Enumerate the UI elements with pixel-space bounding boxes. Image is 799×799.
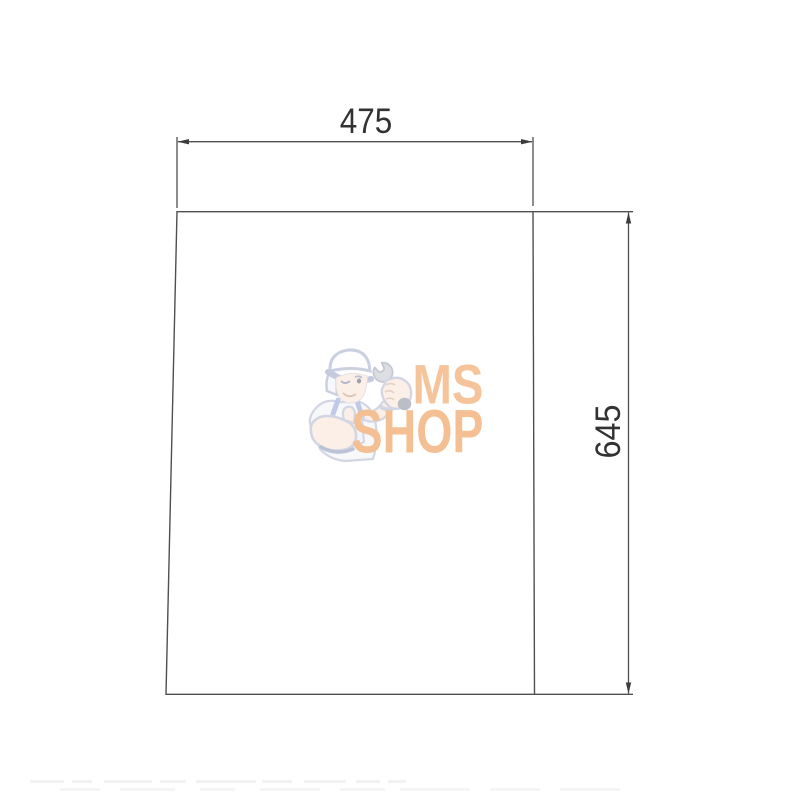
svg-text:475: 475: [340, 101, 393, 141]
svg-text:SHOP: SHOP: [352, 398, 484, 466]
svg-text:645: 645: [588, 405, 628, 459]
